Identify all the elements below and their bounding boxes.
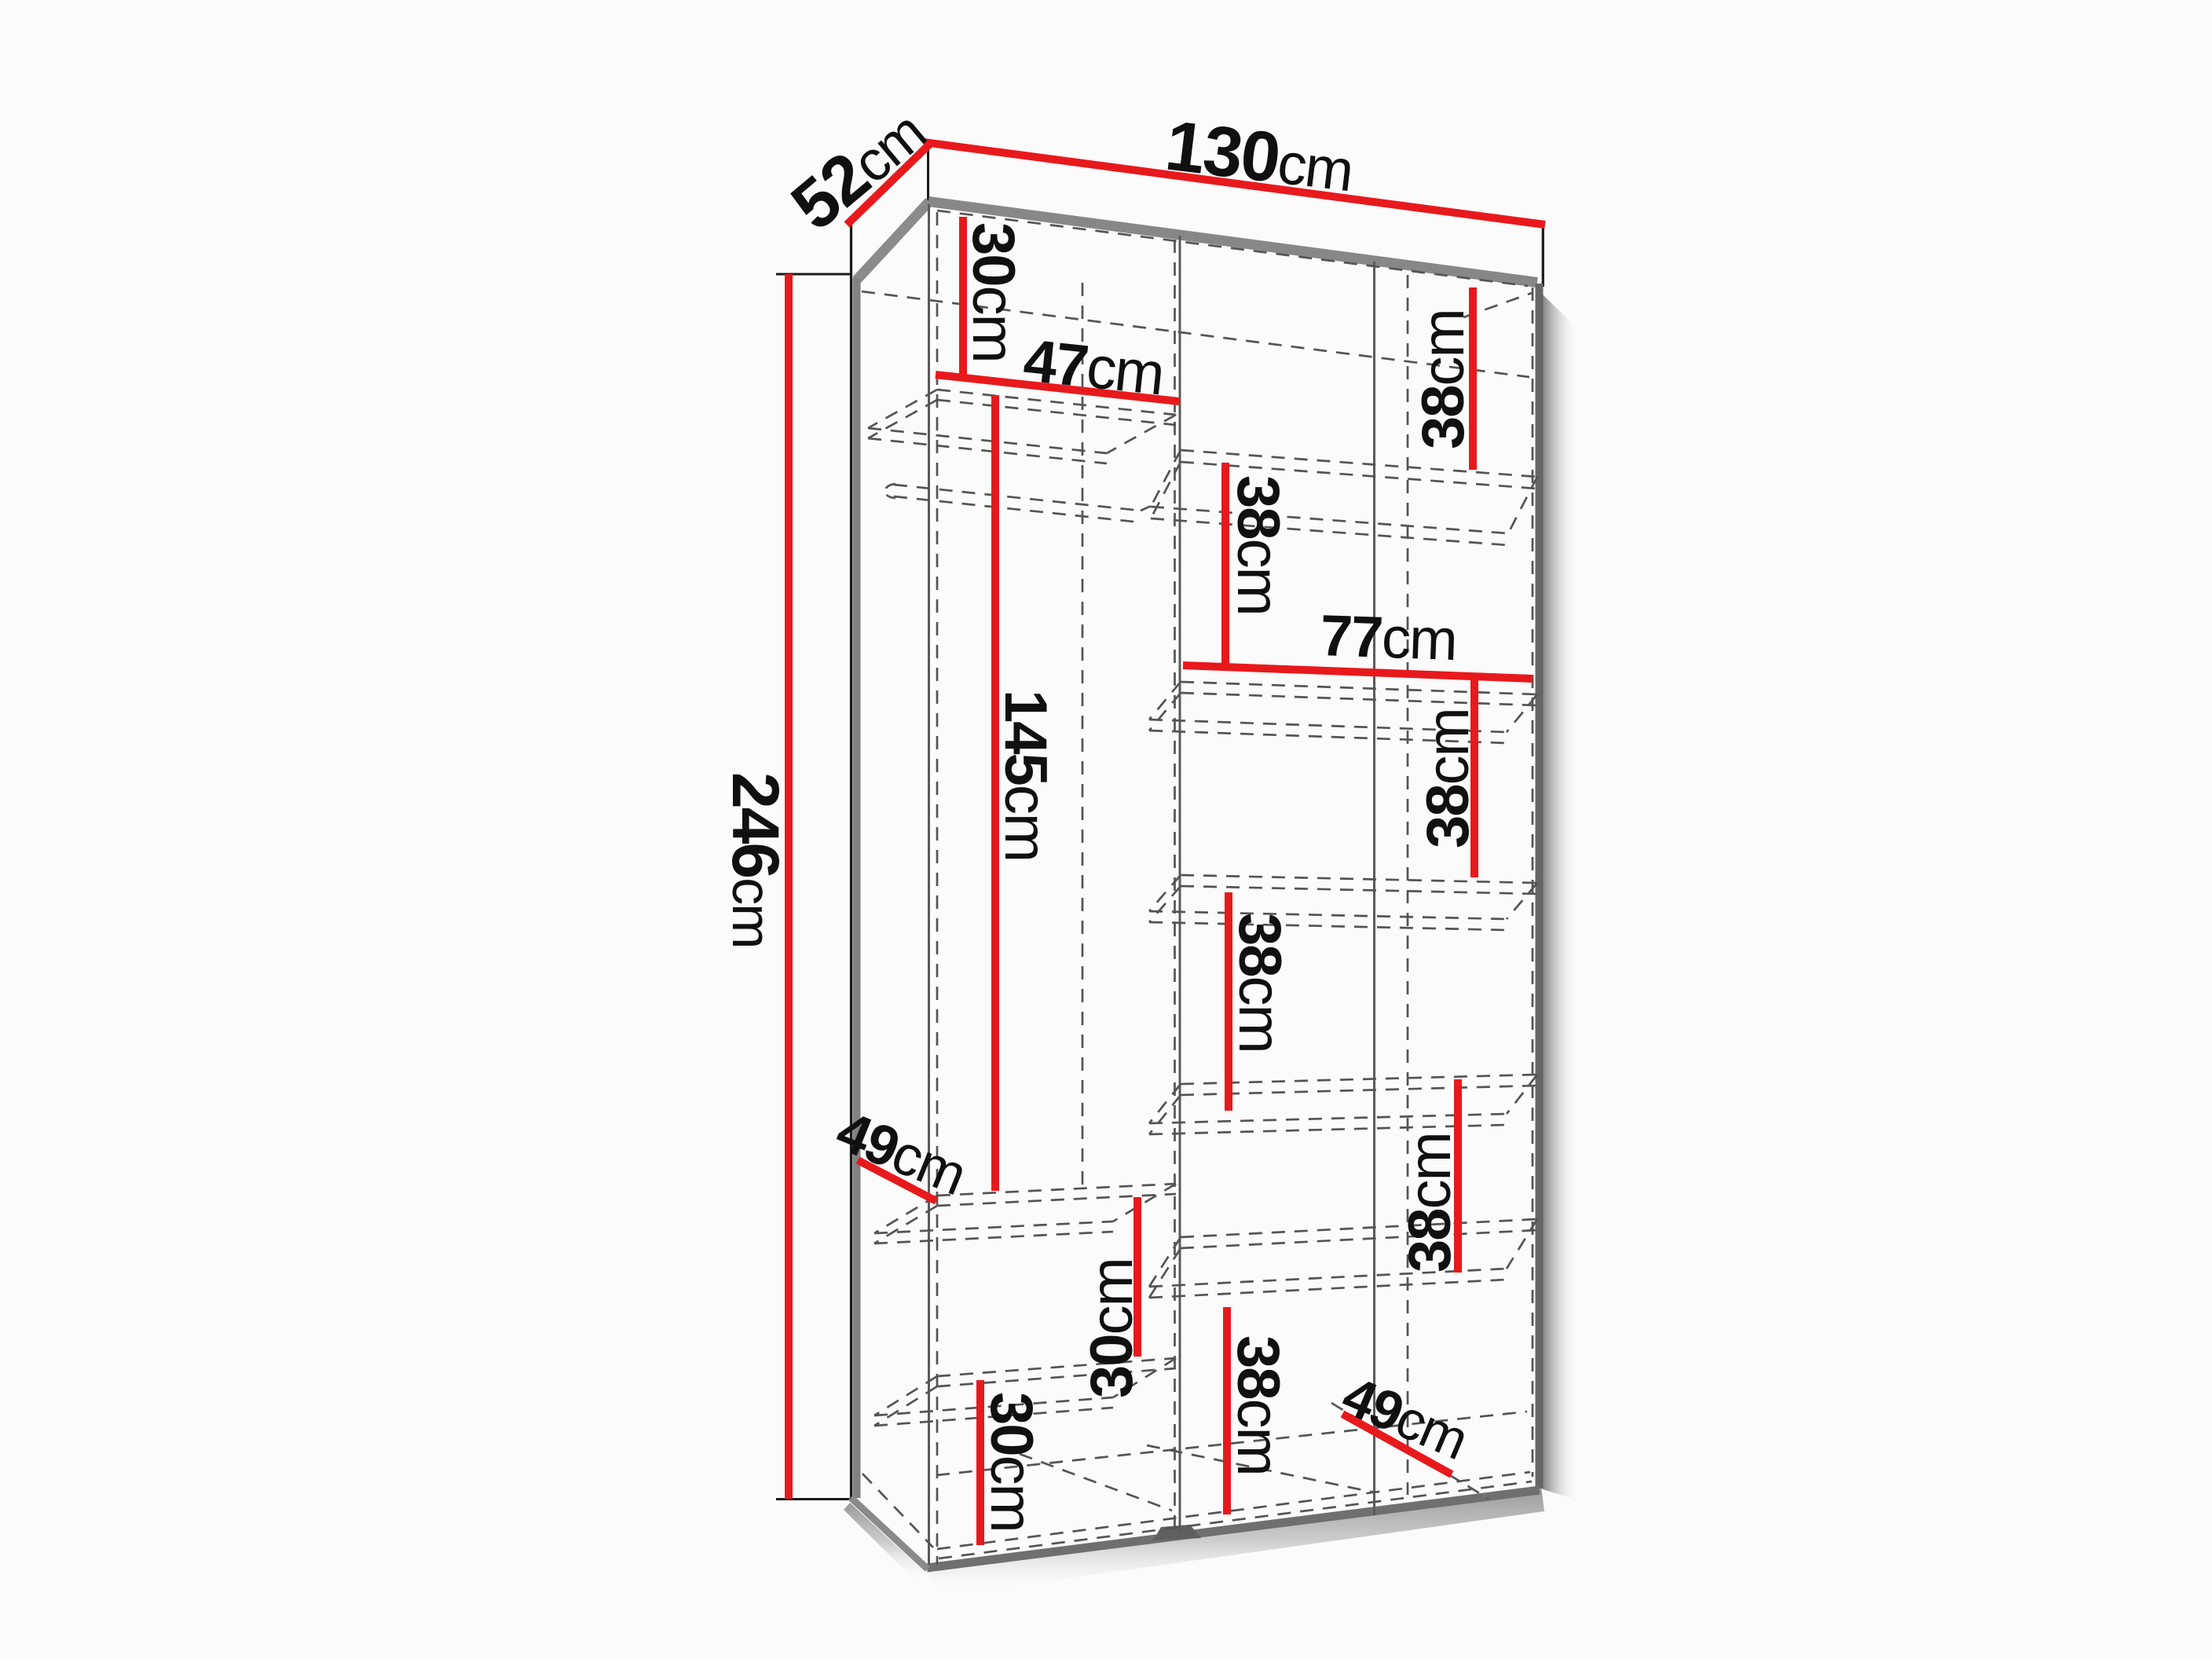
svg-text:38cm: 38cm [1225,1335,1291,1475]
svg-text:246cm: 246cm [719,772,793,947]
svg-text:38cm: 38cm [1226,913,1293,1053]
svg-text:38cm: 38cm [1410,309,1477,449]
svg-text:30cm: 30cm [960,222,1027,362]
svg-text:145cm: 145cm [992,690,1059,861]
svg-text:30cm: 30cm [978,1392,1045,1532]
svg-text:38cm: 38cm [1397,1133,1463,1273]
svg-text:38cm: 38cm [1415,709,1481,848]
svg-text:38cm: 38cm [1225,475,1291,615]
svg-text:77cm: 77cm [1319,602,1457,672]
svg-text:30cm: 30cm [1079,1258,1145,1398]
